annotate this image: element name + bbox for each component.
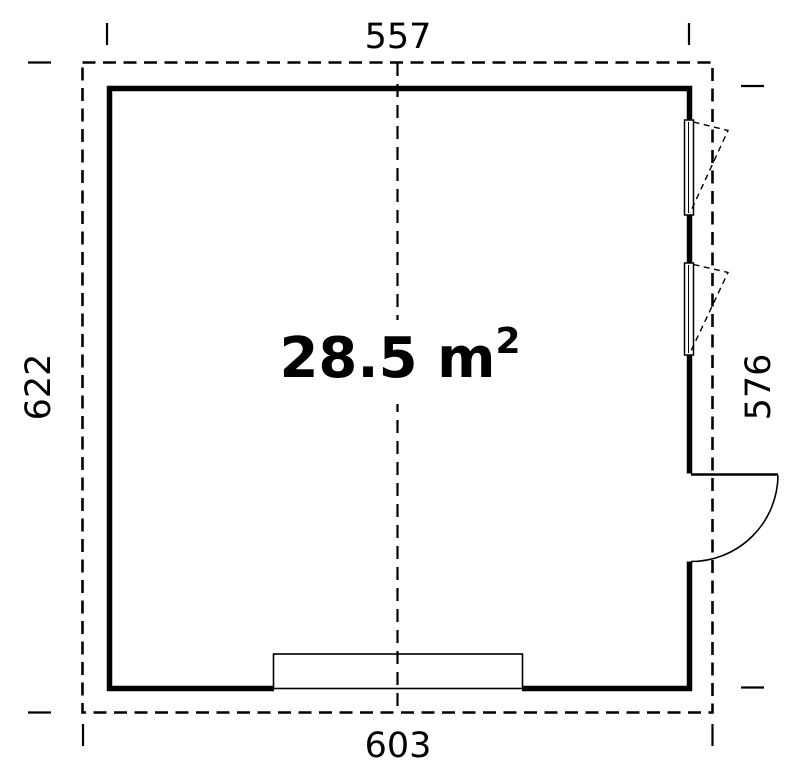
dimension-left-label: 622	[19, 354, 59, 421]
dimension-top-label: 557	[365, 17, 432, 57]
window-top-swing	[690, 122, 728, 213]
floor-plan-drawing: 28.5 m2 557 603 622 576	[0, 0, 794, 784]
area-value: 28.5 m	[279, 326, 495, 391]
door	[691, 475, 778, 562]
area-label: 28.5 m2	[279, 321, 520, 391]
dimension-right-label: 576	[739, 354, 779, 421]
dimension-bottom-label: 603	[365, 726, 432, 766]
door-swing-arc	[691, 476, 778, 562]
window-top	[685, 120, 729, 215]
window-bottom-swing	[690, 265, 728, 354]
window-bottom	[685, 263, 729, 355]
floor-plan-canvas: 28.5 m2 557 603 622 576	[0, 0, 794, 784]
area-superscript: 2	[495, 321, 520, 362]
